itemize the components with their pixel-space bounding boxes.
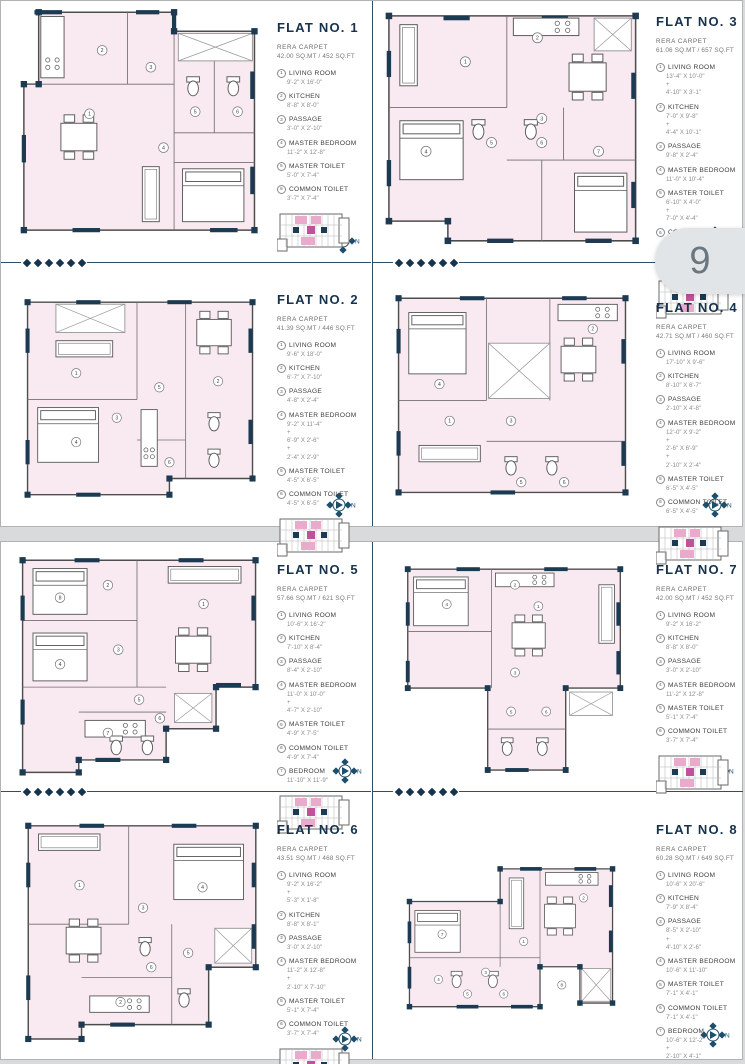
room-number-icon: 5	[656, 980, 665, 989]
room-name: 4MASTER BEDROOM	[656, 166, 742, 175]
room-number-icon: 2	[277, 92, 286, 101]
room-number-icon: 1	[656, 349, 665, 358]
room-name-text: PASSAGE	[289, 116, 322, 123]
room-name: 5MASTER TOILET	[656, 189, 742, 198]
rera-carpet-label: RERA CARPET	[277, 44, 367, 51]
svg-text:1: 1	[464, 60, 467, 66]
svg-text:2: 2	[536, 36, 539, 42]
room-number-icon: 6	[277, 185, 286, 194]
room-name: 5MASTER TOILET	[277, 720, 367, 729]
room-name-text: KITCHEN	[289, 912, 320, 919]
room-dimensions: 4'-5" X 6'-5"	[277, 500, 367, 508]
room-dimensions: 12'-0" X 9'-2" + 2'-6" X 6'-9" + 2'-10" …	[656, 429, 742, 470]
room-spec: 4MASTER BEDROOM11'-0" X 10'-0" + 4'-7" X…	[277, 681, 367, 716]
svg-text:8: 8	[59, 596, 62, 602]
svg-text:7: 7	[597, 149, 600, 155]
room-name: 3PASSAGE	[656, 657, 742, 666]
floor-plan-flat-7: 421356	[398, 558, 632, 788]
room-name-text: COMMON TOILET	[289, 745, 348, 752]
svg-text:4: 4	[445, 602, 448, 608]
svg-text:2: 2	[591, 327, 594, 333]
room-number-icon: 4	[656, 957, 665, 966]
room-name: 5MASTER TOILET	[656, 980, 742, 989]
room-number-icon: 6	[656, 1004, 665, 1013]
room-spec: 5MASTER TOILET5'-0" X 7'-4"	[277, 162, 367, 180]
room-number-icon: 5	[277, 467, 286, 476]
room-number-icon: 4	[277, 139, 286, 148]
room-dimensions: 11'-2" X 12'-8"	[656, 691, 742, 699]
carpet-area-value: 61.06 SQ.MT / 657 SQ.FT	[656, 47, 742, 54]
carpet-area-value: 41.39 SQ.MT / 446 SQ.FT	[277, 325, 367, 332]
room-number-icon: 7	[277, 767, 286, 776]
room-name: 2KITCHEN	[656, 372, 742, 381]
room-name: 3PASSAGE	[656, 917, 742, 926]
room-name: 3PASSAGE	[277, 115, 367, 124]
svg-text:5: 5	[510, 709, 513, 715]
room-name: 4MASTER BEDROOM	[277, 681, 367, 690]
room-name-text: MASTER BEDROOM	[668, 682, 736, 689]
room-number-icon: 5	[277, 997, 286, 1006]
room-spec: 3PASSAGE3'-0" X 2'-10"	[277, 115, 367, 133]
flat-specs-1: FLAT NO. 1RERA CARPET42.00 SQ.MT / 452 S…	[277, 20, 367, 255]
flat-specs-5: FLAT NO. 5RERA CARPET57.66 SQ.MT / 621 S…	[277, 562, 367, 837]
room-name: 5MASTER TOILET	[656, 704, 742, 713]
room-dimensions: 9'-8" X 2'-4"	[656, 152, 742, 160]
room-name-text: PASSAGE	[289, 388, 322, 395]
room-spec: 4MASTER BEDROOM11'-2" X 12'-8"	[277, 139, 367, 157]
room-name-text: MASTER BEDROOM	[289, 140, 357, 147]
floor-plan-flat-4: 423156	[388, 288, 634, 518]
rera-carpet-label: RERA CARPET	[656, 324, 742, 331]
room-spec: 3PASSAGE3'-0" X 2'-10"	[277, 934, 367, 952]
floor-plan-flat-6: 143256	[18, 818, 264, 1056]
room-dimensions: 9'-2" X 16'-2" + 5'-3" X 1'-8"	[277, 881, 367, 906]
room-spec: 6COMMON TOILET3'-7" X 7'-4"	[277, 185, 367, 203]
room-name-text: MASTER TOILET	[289, 998, 345, 1005]
separator-diamond-icon	[33, 787, 41, 795]
room-number-icon: 3	[656, 395, 665, 404]
room-name: 7BEDROOM	[656, 1027, 742, 1036]
room-dimensions: 10'-6" X 16'-2"	[277, 621, 367, 629]
room-number-icon: 3	[277, 115, 286, 124]
room-dimensions: 7'-1" X 4'-1"	[656, 990, 742, 998]
room-name-text: COMMON TOILET	[668, 499, 727, 506]
room-number-icon: 1	[277, 69, 286, 78]
room-dimensions: 3'-0" X 2'-10"	[656, 667, 742, 675]
room-name: 5MASTER TOILET	[277, 467, 367, 476]
room-name-text: MASTER BEDROOM	[668, 167, 736, 174]
room-name-text: LIVING ROOM	[289, 342, 336, 349]
room-number-icon: 2	[277, 634, 286, 643]
svg-text:5: 5	[158, 385, 161, 391]
room-dimensions: 8'-10" X 6'-7"	[656, 382, 742, 390]
room-dimensions: 8'-4" X 2'-10"	[277, 667, 367, 675]
floor-plan-flat-2: 123456	[10, 288, 264, 516]
svg-text:1: 1	[88, 112, 91, 118]
separator-diamond-icon	[405, 258, 413, 266]
room-spec: 1LIVING ROOM9'-6" X 18'-0"	[277, 341, 367, 359]
room-spec: 6COMMON TOILET3'-7" X 7'-4"	[277, 1020, 367, 1038]
svg-text:3: 3	[149, 65, 152, 71]
room-spec: 6COMMON TOILET6'-5" X 4'-5"	[656, 498, 742, 516]
room-dimensions: 9'-2" X 16'-0"	[277, 79, 367, 87]
room-spec: 4MASTER BEDROOM11'-0" X 10'-4"	[656, 166, 742, 184]
svg-text:6: 6	[236, 110, 239, 116]
separator-diamond-icon	[416, 787, 424, 795]
room-spec: 1LIVING ROOM10'-6" X 16'-2"	[277, 611, 367, 629]
room-name-text: PASSAGE	[289, 935, 322, 942]
room-dimensions: 4'-9" X 7'-4"	[277, 754, 367, 762]
room-name-text: BEDROOM	[289, 768, 325, 775]
svg-text:3: 3	[115, 416, 118, 422]
room-number-icon: 4	[277, 411, 286, 420]
room-name: 4MASTER BEDROOM	[277, 139, 367, 148]
room-number-icon: 5	[656, 475, 665, 484]
room-dimensions: 11'-2" X 12'-8" + 2'-10" X 7'-10"	[277, 967, 367, 992]
room-name-text: LIVING ROOM	[289, 70, 336, 77]
room-name: 2KITCHEN	[277, 92, 367, 101]
room-number-icon: 5	[277, 720, 286, 729]
room-name-text: PASSAGE	[289, 658, 322, 665]
row-separator	[1, 258, 371, 267]
svg-text:1: 1	[537, 604, 540, 610]
room-name: 6COMMON TOILET	[656, 1004, 742, 1013]
rera-carpet-label: RERA CARPET	[656, 846, 742, 853]
separator-diamond-icon	[22, 258, 30, 266]
separator-diamond-icon	[427, 258, 435, 266]
floor-plan-flat-8: 71243568	[378, 858, 644, 1062]
room-dimensions: 6'-5" X 4'-5"	[656, 485, 742, 493]
room-number-icon: 2	[277, 364, 286, 373]
flat-specs-6: FLAT NO. 6RERA CARPET43.51 SQ.MT / 468 S…	[277, 822, 367, 1064]
flat-title: FLAT NO. 7	[656, 562, 742, 577]
room-spec: 3PASSAGE2'-10" X 4'-8"	[656, 395, 742, 413]
room-number-icon: 4	[656, 166, 665, 175]
separator-diamond-icon	[44, 787, 52, 795]
room-dimensions: 11'-10" X 11'-9"	[277, 777, 367, 785]
room-spec: 4MASTER BEDROOM11'-2" X 12'-8" + 2'-10" …	[277, 957, 367, 992]
svg-text:5: 5	[194, 110, 197, 116]
room-dimensions: 8'-8" X 8'-0"	[277, 102, 367, 110]
room-spec: 2KITCHEN6'-7" X 7'-10"	[277, 364, 367, 382]
room-dimensions: 3'-7" X 7'-4"	[656, 737, 742, 745]
room-spec: 1LIVING ROOM13'-4" X 10'-0" + 4'-10" X 3…	[656, 63, 742, 98]
room-dimensions: 10'-6" X 20'-6"	[656, 881, 742, 889]
room-name: 6COMMON TOILET	[656, 727, 742, 736]
room-dimensions: 10'-6" X 12'-2" + 2'-10" X 4'-1"	[656, 1037, 742, 1062]
separator-diamond-icon	[405, 787, 413, 795]
room-name-text: COMMON TOILET	[668, 1005, 727, 1012]
rera-carpet-label: RERA CARPET	[277, 316, 367, 323]
room-spec: 6COMMON TOILET7'-1" X 4'-1"	[656, 1004, 742, 1022]
room-name: 4MASTER BEDROOM	[656, 957, 742, 966]
room-number-icon: 6	[277, 744, 286, 753]
svg-text:2: 2	[101, 48, 104, 54]
rera-carpet-label: RERA CARPET	[656, 38, 742, 45]
flat-title: FLAT NO. 4	[656, 300, 742, 315]
rera-carpet-label: RERA CARPET	[277, 846, 367, 853]
separator-diamond-icon	[438, 787, 446, 795]
room-name: 3PASSAGE	[656, 142, 742, 151]
room-name: 6COMMON TOILET	[277, 185, 367, 194]
svg-text:4: 4	[59, 662, 62, 668]
room-name-text: KITCHEN	[668, 895, 699, 902]
room-dimensions: 8'-5" X 2'-10" + 4'-10" X 2'-6"	[656, 927, 742, 952]
room-number-icon: 6	[277, 490, 286, 499]
flat-specs-7: FLAT NO. 7RERA CARPET42.00 SQ.MT / 452 S…	[656, 562, 742, 797]
room-dimensions: 10'-6" X 11'-10"	[656, 967, 742, 975]
room-spec: 5MASTER TOILET6'-5" X 4'-5"	[656, 475, 742, 493]
room-dimensions: 3'-7" X 7'-4"	[277, 1030, 367, 1038]
room-spec: 6COMMON TOILET3'-7" X 7'-4"	[656, 727, 742, 745]
room-name-text: PASSAGE	[668, 918, 701, 925]
room-dimensions: 6'-7" X 7'-10"	[277, 374, 367, 382]
separator-diamond-icon	[33, 258, 41, 266]
room-name: 6COMMON TOILET	[277, 744, 367, 753]
room-name: 4MASTER BEDROOM	[277, 411, 367, 420]
room-name-text: KITCHEN	[668, 635, 699, 642]
svg-text:1: 1	[202, 602, 205, 608]
room-number-icon: 3	[656, 657, 665, 666]
separator-diamond-icon	[438, 258, 446, 266]
room-name-text: PASSAGE	[668, 658, 701, 665]
flat-specs-8: FLAT NO. 8RERA CARPET60.28 SQ.MT / 649 S…	[656, 822, 742, 1064]
room-name-text: LIVING ROOM	[668, 872, 715, 879]
room-spec: 3PASSAGE8'-5" X 2'-10" + 4'-10" X 2'-6"	[656, 917, 742, 952]
room-name-text: KITCHEN	[668, 104, 699, 111]
room-name-text: LIVING ROOM	[289, 872, 336, 879]
room-name: 6COMMON TOILET	[277, 490, 367, 499]
room-dimensions: 2'-10" X 4'-8"	[656, 405, 742, 413]
svg-text:5: 5	[138, 697, 141, 703]
room-name: 1LIVING ROOM	[277, 611, 367, 620]
room-dimensions: 3'-7" X 7'-4"	[277, 195, 367, 203]
room-number-icon: 4	[277, 957, 286, 966]
room-name-text: MASTER TOILET	[668, 476, 724, 483]
room-spec: 6COMMON TOILET4'-5" X 6'-5"	[277, 490, 367, 508]
room-name: 6COMMON TOILET	[656, 498, 742, 507]
svg-text:1: 1	[75, 371, 78, 377]
room-spec: 4MASTER BEDROOM12'-0" X 9'-2" + 2'-6" X …	[656, 419, 742, 470]
room-dimensions: 8'-8" X 8'-0"	[656, 644, 742, 652]
room-name-text: KITCHEN	[289, 365, 320, 372]
room-name: 2KITCHEN	[656, 634, 742, 643]
flat-title: FLAT NO. 1	[277, 20, 367, 35]
room-spec: 3PASSAGE8'-4" X 2'-10"	[277, 657, 367, 675]
room-dimensions: 4'-5" X 6'-5"	[277, 477, 367, 485]
room-dimensions: 9'-2" X 16'-2"	[656, 621, 742, 629]
room-name: 2KITCHEN	[277, 911, 367, 920]
svg-text:6: 6	[150, 965, 153, 971]
svg-text:4: 4	[75, 440, 78, 446]
room-number-icon: 1	[277, 871, 286, 880]
room-name-text: MASTER TOILET	[289, 163, 345, 170]
room-name: 7BEDROOM	[277, 767, 367, 776]
room-dimensions: 4'-9" X 7'-5"	[277, 730, 367, 738]
room-name-text: LIVING ROOM	[668, 64, 715, 71]
room-number-icon: 4	[656, 419, 665, 428]
svg-text:6: 6	[158, 716, 161, 722]
room-number-icon: 5	[277, 162, 286, 171]
room-dimensions: 5'-1" X 7'-4"	[656, 714, 742, 722]
svg-text:6: 6	[563, 480, 566, 486]
room-number-icon: 6	[656, 498, 665, 507]
room-name: 3PASSAGE	[277, 387, 367, 396]
room-number-icon: 6	[656, 228, 665, 237]
svg-text:3: 3	[540, 117, 543, 123]
room-spec: 5MASTER TOILET4'-9" X 7'-5"	[277, 720, 367, 738]
page-number: 9	[689, 240, 710, 283]
room-dimensions: 7'-10" X 8'-4"	[277, 644, 367, 652]
room-spec: 3PASSAGE4'-8" X 2'-4"	[277, 387, 367, 405]
carpet-area-value: 43.51 SQ.MT / 468 SQ.FT	[277, 855, 367, 862]
room-name-text: MASTER TOILET	[289, 721, 345, 728]
room-spec: 3PASSAGE3'-0" X 2'-10"	[656, 657, 742, 675]
room-number-icon: 4	[656, 681, 665, 690]
separator-diamond-icon	[77, 258, 85, 266]
room-number-icon: 2	[656, 634, 665, 643]
room-dimensions: 17'-10" X 9'-6"	[656, 359, 742, 367]
room-number-icon: 1	[277, 341, 286, 350]
room-dimensions: 5'-1" X 7'-4"	[277, 1007, 367, 1015]
room-name: 3PASSAGE	[277, 934, 367, 943]
brochure-spread: 9 231456FLAT NO. 1RERA CARPET42.00 SQ.MT…	[0, 0, 745, 1064]
room-name-text: MASTER TOILET	[289, 468, 345, 475]
room-number-icon: 3	[277, 934, 286, 943]
rera-carpet-label: RERA CARPET	[277, 586, 367, 593]
room-name-text: MASTER BEDROOM	[289, 958, 357, 965]
room-name-text: LIVING ROOM	[668, 612, 715, 619]
room-name: 3PASSAGE	[656, 395, 742, 404]
room-name-text: LIVING ROOM	[668, 350, 715, 357]
room-dimensions: 7'-9" X 8'-4"	[656, 904, 742, 912]
room-dimensions: 11'-0" X 10'-4"	[656, 176, 742, 184]
separator-diamond-icon	[394, 258, 402, 266]
room-dimensions: 7'-1" X 4'-1"	[656, 1014, 742, 1022]
room-dimensions: 11'-2" X 12'-8"	[277, 149, 367, 157]
room-spec: 1LIVING ROOM9'-2" X 16'-2"	[656, 611, 742, 629]
room-spec: 3PASSAGE9'-8" X 2'-4"	[656, 142, 742, 160]
room-number-icon: 3	[277, 657, 286, 666]
room-spec: 7BEDROOM10'-6" X 12'-2" + 2'-10" X 4'-1"	[656, 1027, 742, 1062]
room-name: 2KITCHEN	[656, 894, 742, 903]
room-name-text: MASTER BEDROOM	[668, 420, 736, 427]
svg-text:4: 4	[438, 382, 441, 388]
room-name: 1LIVING ROOM	[277, 69, 367, 78]
room-spec: 5MASTER TOILET7'-1" X 4'-1"	[656, 980, 742, 998]
svg-text:3: 3	[514, 670, 517, 676]
room-name: 1LIVING ROOM	[277, 341, 367, 350]
room-spec: 2KITCHEN8'-8" X 8'-0"	[656, 634, 742, 652]
room-name: 1LIVING ROOM	[656, 611, 742, 620]
svg-text:2: 2	[119, 1000, 122, 1006]
room-name: 2KITCHEN	[277, 364, 367, 373]
separator-diamond-icon	[416, 258, 424, 266]
svg-text:5: 5	[520, 480, 523, 486]
key-plan	[277, 209, 351, 255]
room-dimensions: 9'-2" X 11'-4" + 6'-9" X 2'-6" + 2'-4" X…	[277, 421, 367, 462]
room-spec: 5MASTER TOILET4'-5" X 6'-5"	[277, 467, 367, 485]
room-name-text: KITCHEN	[289, 93, 320, 100]
room-name-text: COMMON TOILET	[289, 1021, 348, 1028]
room-name-text: PASSAGE	[668, 143, 701, 150]
room-spec: 2KITCHEN8'-8" X 8'-0"	[277, 92, 367, 110]
room-spec: 6COMMON TOILET4'-9" X 7'-4"	[277, 744, 367, 762]
svg-text:2: 2	[217, 379, 220, 385]
room-name: 5MASTER TOILET	[277, 997, 367, 1006]
room-spec: 5MASTER TOILET5'-1" X 7'-4"	[656, 704, 742, 722]
room-dimensions: 5'-0" X 7'-4"	[277, 172, 367, 180]
carpet-area-value: 60.28 SQ.MT / 649 SQ.FT	[656, 855, 742, 862]
room-dimensions: 3'-0" X 2'-10"	[277, 944, 367, 952]
separator-diamond-icon	[66, 787, 74, 795]
room-name-text: MASTER BEDROOM	[289, 412, 357, 419]
svg-text:2: 2	[106, 583, 109, 589]
carpet-area-value: 42.71 SQ.MT / 460 SQ.FT	[656, 333, 742, 340]
floor-plan-flat-3: 1234567	[378, 6, 640, 254]
room-name: 2KITCHEN	[277, 634, 367, 643]
room-name: 1LIVING ROOM	[656, 349, 742, 358]
separator-diamond-icon	[449, 787, 457, 795]
room-name-text: MASTER TOILET	[668, 705, 724, 712]
room-number-icon: 5	[656, 189, 665, 198]
room-number-icon: 3	[656, 142, 665, 151]
flat-specs-4: FLAT NO. 4RERA CARPET42.71 SQ.MT / 460 S…	[656, 300, 742, 568]
carpet-area-value: 42.00 SQ.MT / 452 SQ.FT	[656, 595, 742, 602]
room-dimensions: 6'-5" X 4'-5"	[656, 508, 742, 516]
carpet-area-value: 42.00 SQ.MT / 452 SQ.FT	[277, 53, 367, 60]
key-plan	[656, 751, 730, 797]
room-dimensions: 8'-8" X 8'-1"	[277, 921, 367, 929]
room-name: 3PASSAGE	[277, 657, 367, 666]
room-spec: 2KITCHEN7'-10" X 8'-4"	[277, 634, 367, 652]
room-spec: 2KITCHEN7'-9" X 8'-4"	[656, 894, 742, 912]
room-name-text: KITCHEN	[289, 635, 320, 642]
room-number-icon: 3	[656, 917, 665, 926]
svg-text:3: 3	[142, 906, 145, 912]
room-number-icon: 6	[656, 727, 665, 736]
room-spec: 7BEDROOM11'-10" X 11'-9"	[277, 767, 367, 785]
room-spec: 4MASTER BEDROOM10'-6" X 11'-10"	[656, 957, 742, 975]
flat-title: FLAT NO. 8	[656, 822, 742, 837]
flat-title: FLAT NO. 2	[277, 292, 367, 307]
room-name: 1LIVING ROOM	[656, 63, 742, 72]
room-number-icon: 1	[656, 871, 665, 880]
svg-text:5: 5	[187, 951, 190, 957]
svg-text:3: 3	[510, 419, 513, 425]
svg-text:3: 3	[117, 648, 120, 654]
flat-title: FLAT NO. 3	[656, 14, 742, 29]
room-number-icon: 2	[656, 103, 665, 112]
room-number-icon: 3	[277, 387, 286, 396]
room-name: 2KITCHEN	[656, 103, 742, 112]
svg-text:4: 4	[425, 149, 428, 155]
separator-diamond-icon	[394, 787, 402, 795]
room-name-text: MASTER BEDROOM	[668, 958, 736, 965]
room-number-icon: 6	[277, 1020, 286, 1029]
separator-diamond-icon	[427, 787, 435, 795]
room-name-text: BEDROOM	[668, 1028, 704, 1035]
svg-text:1: 1	[448, 419, 451, 425]
room-name-text: MASTER TOILET	[668, 981, 724, 988]
room-name-text: PASSAGE	[668, 396, 701, 403]
room-name: 5MASTER TOILET	[656, 475, 742, 484]
flat-title: FLAT NO. 5	[277, 562, 367, 577]
room-number-icon: 2	[656, 372, 665, 381]
room-name: 4MASTER BEDROOM	[277, 957, 367, 966]
svg-text:5: 5	[490, 141, 493, 147]
separator-diamond-icon	[55, 258, 63, 266]
